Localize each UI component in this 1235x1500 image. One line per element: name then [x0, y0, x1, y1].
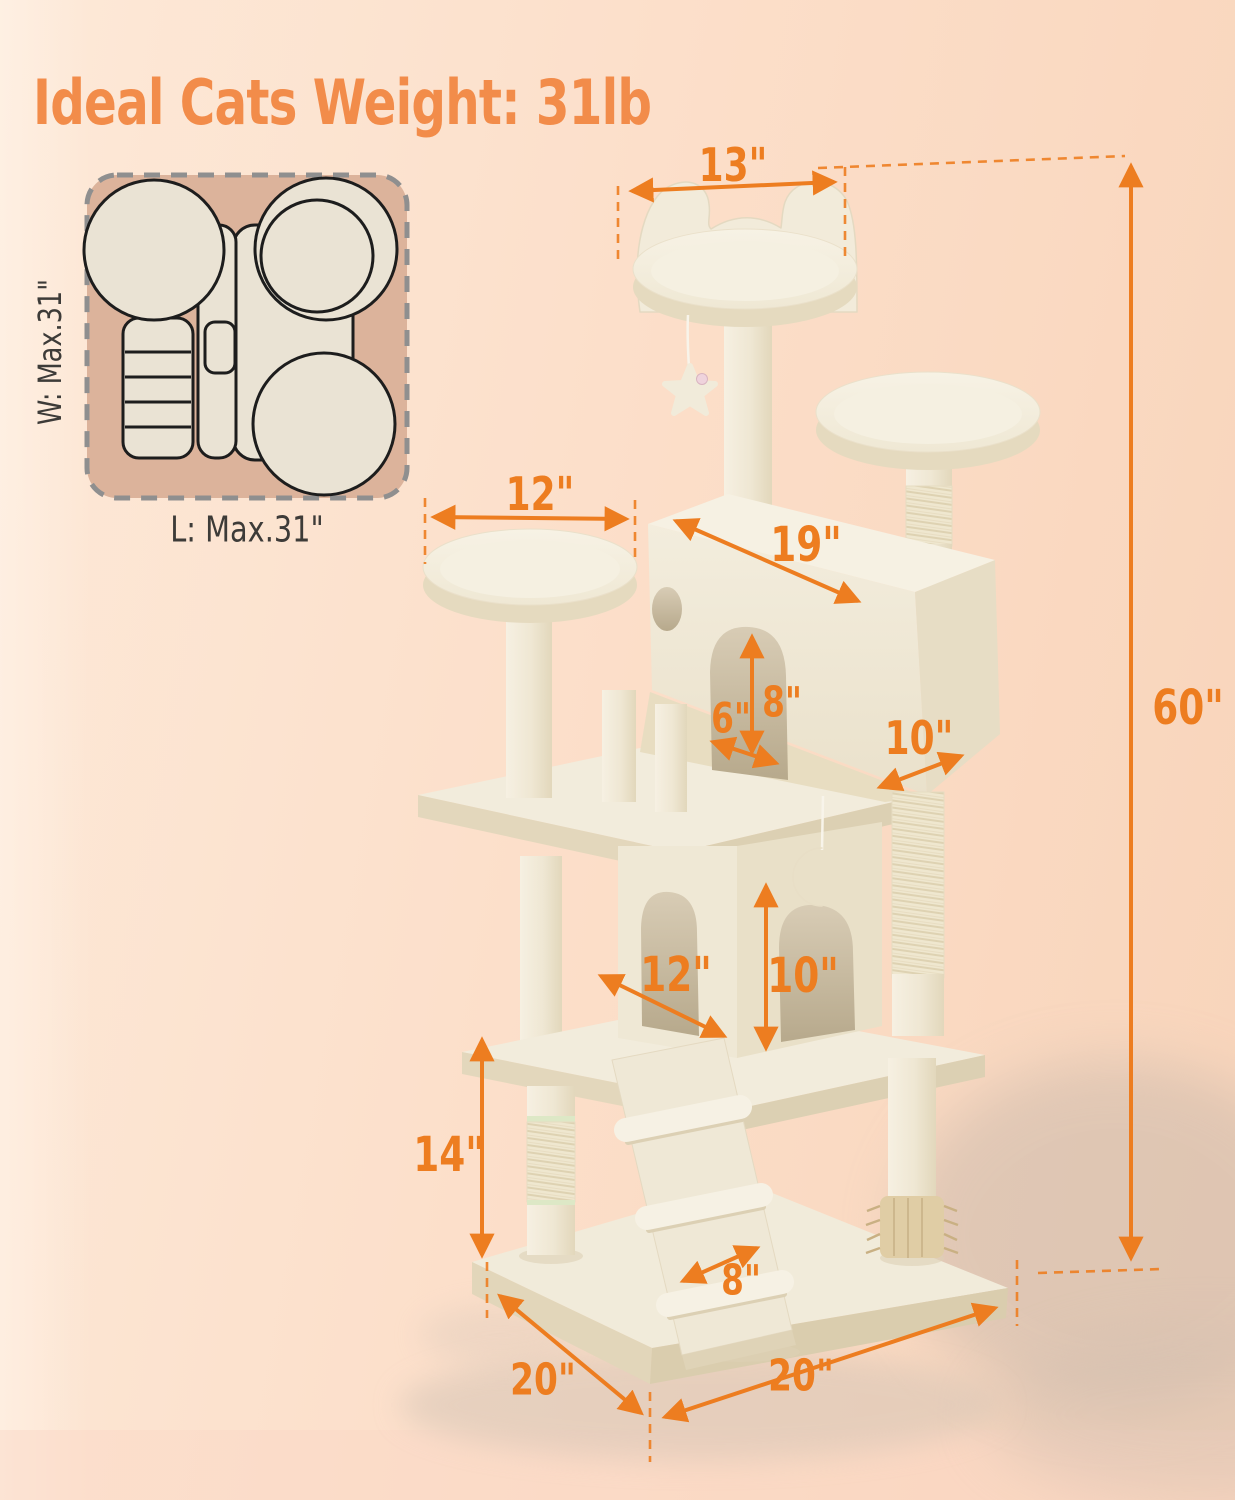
right-perch-post-sisal	[906, 486, 952, 546]
star-toy-bell	[697, 374, 708, 385]
left-mid-post	[520, 856, 562, 1056]
dim-label-condo-length: 19"	[770, 517, 842, 573]
top-view-inset	[84, 175, 407, 498]
dim-label-lower-condo-height: 10"	[767, 948, 839, 1004]
top-view-perch-bottom	[253, 353, 395, 495]
dim-label-condo-door-height: 8"	[762, 678, 802, 727]
top-view-perch-right-inner	[261, 200, 373, 312]
moon-toy-string	[822, 796, 823, 850]
left-base-scratching-post	[527, 1086, 575, 1255]
dim-label-condo-door-width: 6"	[711, 694, 751, 743]
top-perch-post	[724, 300, 772, 518]
star-toy	[665, 366, 715, 413]
right-sisal-post	[892, 792, 944, 978]
condo-support-post-right	[655, 704, 687, 812]
dim-label-ramp-width: 8"	[721, 1256, 761, 1305]
page-title: Ideal Cats Weight: 31lb	[33, 66, 651, 139]
cat-tree-diagram-canvas	[0, 0, 1235, 1500]
top-view-length-label: L: Max.31"	[170, 510, 324, 551]
dim-label-base-side-right: 20"	[768, 1350, 834, 1401]
right-perch-cushion	[834, 384, 1022, 444]
self-groomer-brush	[880, 1196, 944, 1258]
product-dimension-image: Ideal Cats Weight: 31lb W: Max.31" L: Ma…	[0, 0, 1235, 1500]
dim-label-left-perch-diameter: 12"	[506, 467, 575, 521]
right-sisal-post-base	[892, 974, 944, 1036]
star-toy-string	[688, 315, 689, 368]
dim-label-base-side-left: 20"	[510, 1354, 576, 1405]
top-perch-cushion	[651, 241, 839, 301]
dim-label-top-perch-width: 13"	[699, 138, 768, 192]
top-view-ramp-outline	[123, 318, 193, 458]
dim-label-condo-depth: 10"	[885, 711, 954, 765]
condo-support-post-left	[602, 690, 636, 802]
upper-condo-window-hole	[652, 587, 682, 631]
top-view-width-label: W: Max.31"	[31, 279, 69, 425]
dim-label-total-height: 60"	[1152, 680, 1224, 736]
left-perch-cushion	[440, 540, 620, 598]
left-perch-post	[506, 602, 552, 798]
dim-label-lower-condo-width: 12"	[640, 947, 712, 1003]
top-view-perch-left	[84, 180, 224, 320]
top-view-small-shelf-outline	[205, 322, 235, 373]
dim-label-lower-section-height: 14"	[413, 1127, 485, 1183]
